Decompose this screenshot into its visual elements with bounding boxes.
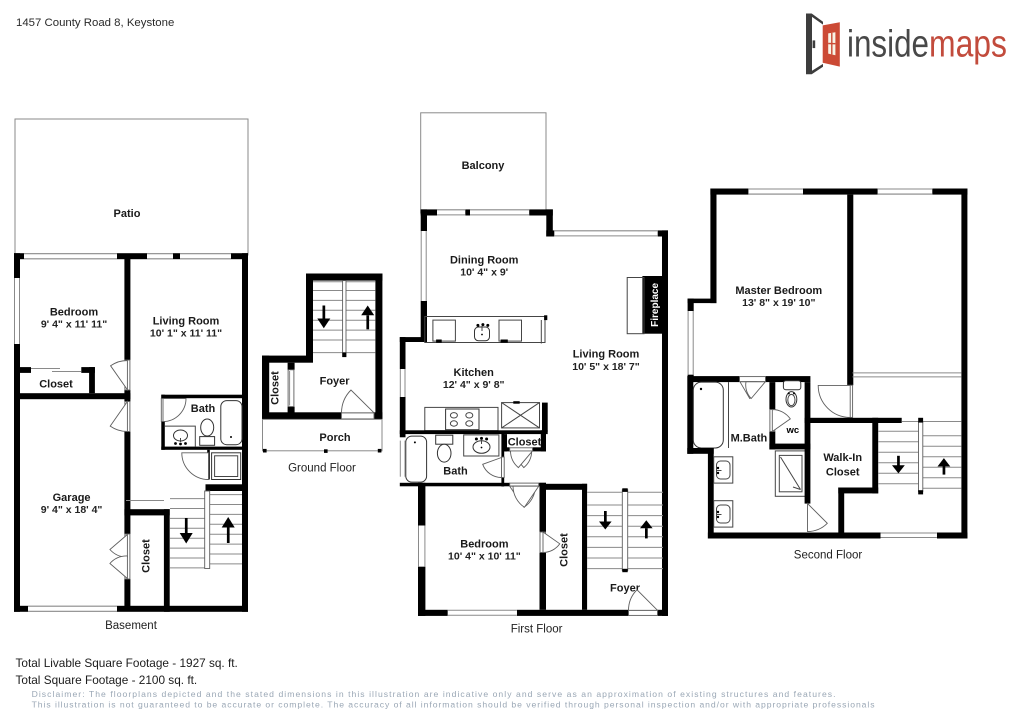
svg-text:Basement: Basement — [105, 620, 158, 632]
svg-text:Foyer: Foyer — [320, 376, 351, 388]
svg-text:Closet: Closet — [270, 371, 282, 405]
svg-text:Bath: Bath — [191, 403, 216, 415]
svg-text:First Floor: First Floor — [511, 624, 563, 636]
svg-text:This illustration is not guara: This illustration is not guaranteed to b… — [32, 700, 876, 710]
svg-text:Living Room: Living Room — [153, 316, 220, 328]
svg-text:Kitchen: Kitchen — [454, 367, 495, 379]
svg-text:13' 8" x 19' 10": 13' 8" x 19' 10" — [742, 297, 815, 309]
svg-text:Total Square Footage - 2100 sq: Total Square Footage - 2100 sq. ft. — [16, 673, 198, 687]
svg-text:Closet: Closet — [39, 379, 73, 391]
svg-text:Closet: Closet — [559, 533, 571, 567]
svg-text:inside: inside — [847, 24, 929, 66]
svg-text:M.Bath: M.Bath — [731, 433, 768, 445]
svg-text:9' 4" x 11' 11": 9' 4" x 11' 11" — [41, 319, 107, 331]
svg-text:9' 4" x 18' 4": 9' 4" x 18' 4" — [41, 504, 103, 516]
svg-text:12' 4" x 9' 8": 12' 4" x 9' 8" — [443, 379, 505, 391]
svg-text:Ground Floor: Ground Floor — [288, 463, 356, 475]
svg-text:Closet: Closet — [141, 539, 153, 573]
svg-text:Fireplace: Fireplace — [650, 283, 661, 327]
svg-text:1457 County Road 8, Keystone: 1457 County Road 8, Keystone — [16, 17, 174, 29]
svg-text:Porch: Porch — [319, 432, 350, 444]
svg-text:Closet: Closet — [508, 437, 542, 449]
svg-text:Bedroom: Bedroom — [460, 539, 509, 551]
svg-text:Balcony: Balcony — [462, 160, 506, 172]
svg-text:Second Floor: Second Floor — [794, 550, 863, 562]
svg-text:10' 4" x 10' 11": 10' 4" x 10' 11" — [448, 551, 521, 563]
svg-text:wc: wc — [786, 425, 800, 436]
svg-text:Patio: Patio — [114, 208, 141, 220]
svg-text:Walk-In: Walk-In — [823, 452, 862, 464]
svg-text:Garage: Garage — [53, 492, 91, 504]
svg-text:Bedroom: Bedroom — [50, 307, 99, 319]
svg-text:Disclaimer: The floorplans dep: Disclaimer: The floorplans depicted and … — [32, 689, 837, 699]
svg-text:Living Room: Living Room — [573, 349, 640, 361]
svg-text:Dining Room: Dining Room — [450, 255, 519, 267]
svg-text:10' 1" x 11' 11": 10' 1" x 11' 11" — [150, 328, 222, 340]
svg-text:maps: maps — [929, 24, 1007, 66]
svg-text:10' 5" x 18' 7": 10' 5" x 18' 7" — [572, 361, 640, 373]
svg-text:10' 4" x 9': 10' 4" x 9' — [460, 267, 508, 279]
svg-text:Total Livable Square Footage -: Total Livable Square Footage - 1927 sq. … — [16, 656, 238, 670]
svg-text:Master Bedroom: Master Bedroom — [735, 285, 822, 297]
svg-text:Closet: Closet — [826, 467, 860, 479]
svg-text:Bath: Bath — [443, 466, 468, 478]
